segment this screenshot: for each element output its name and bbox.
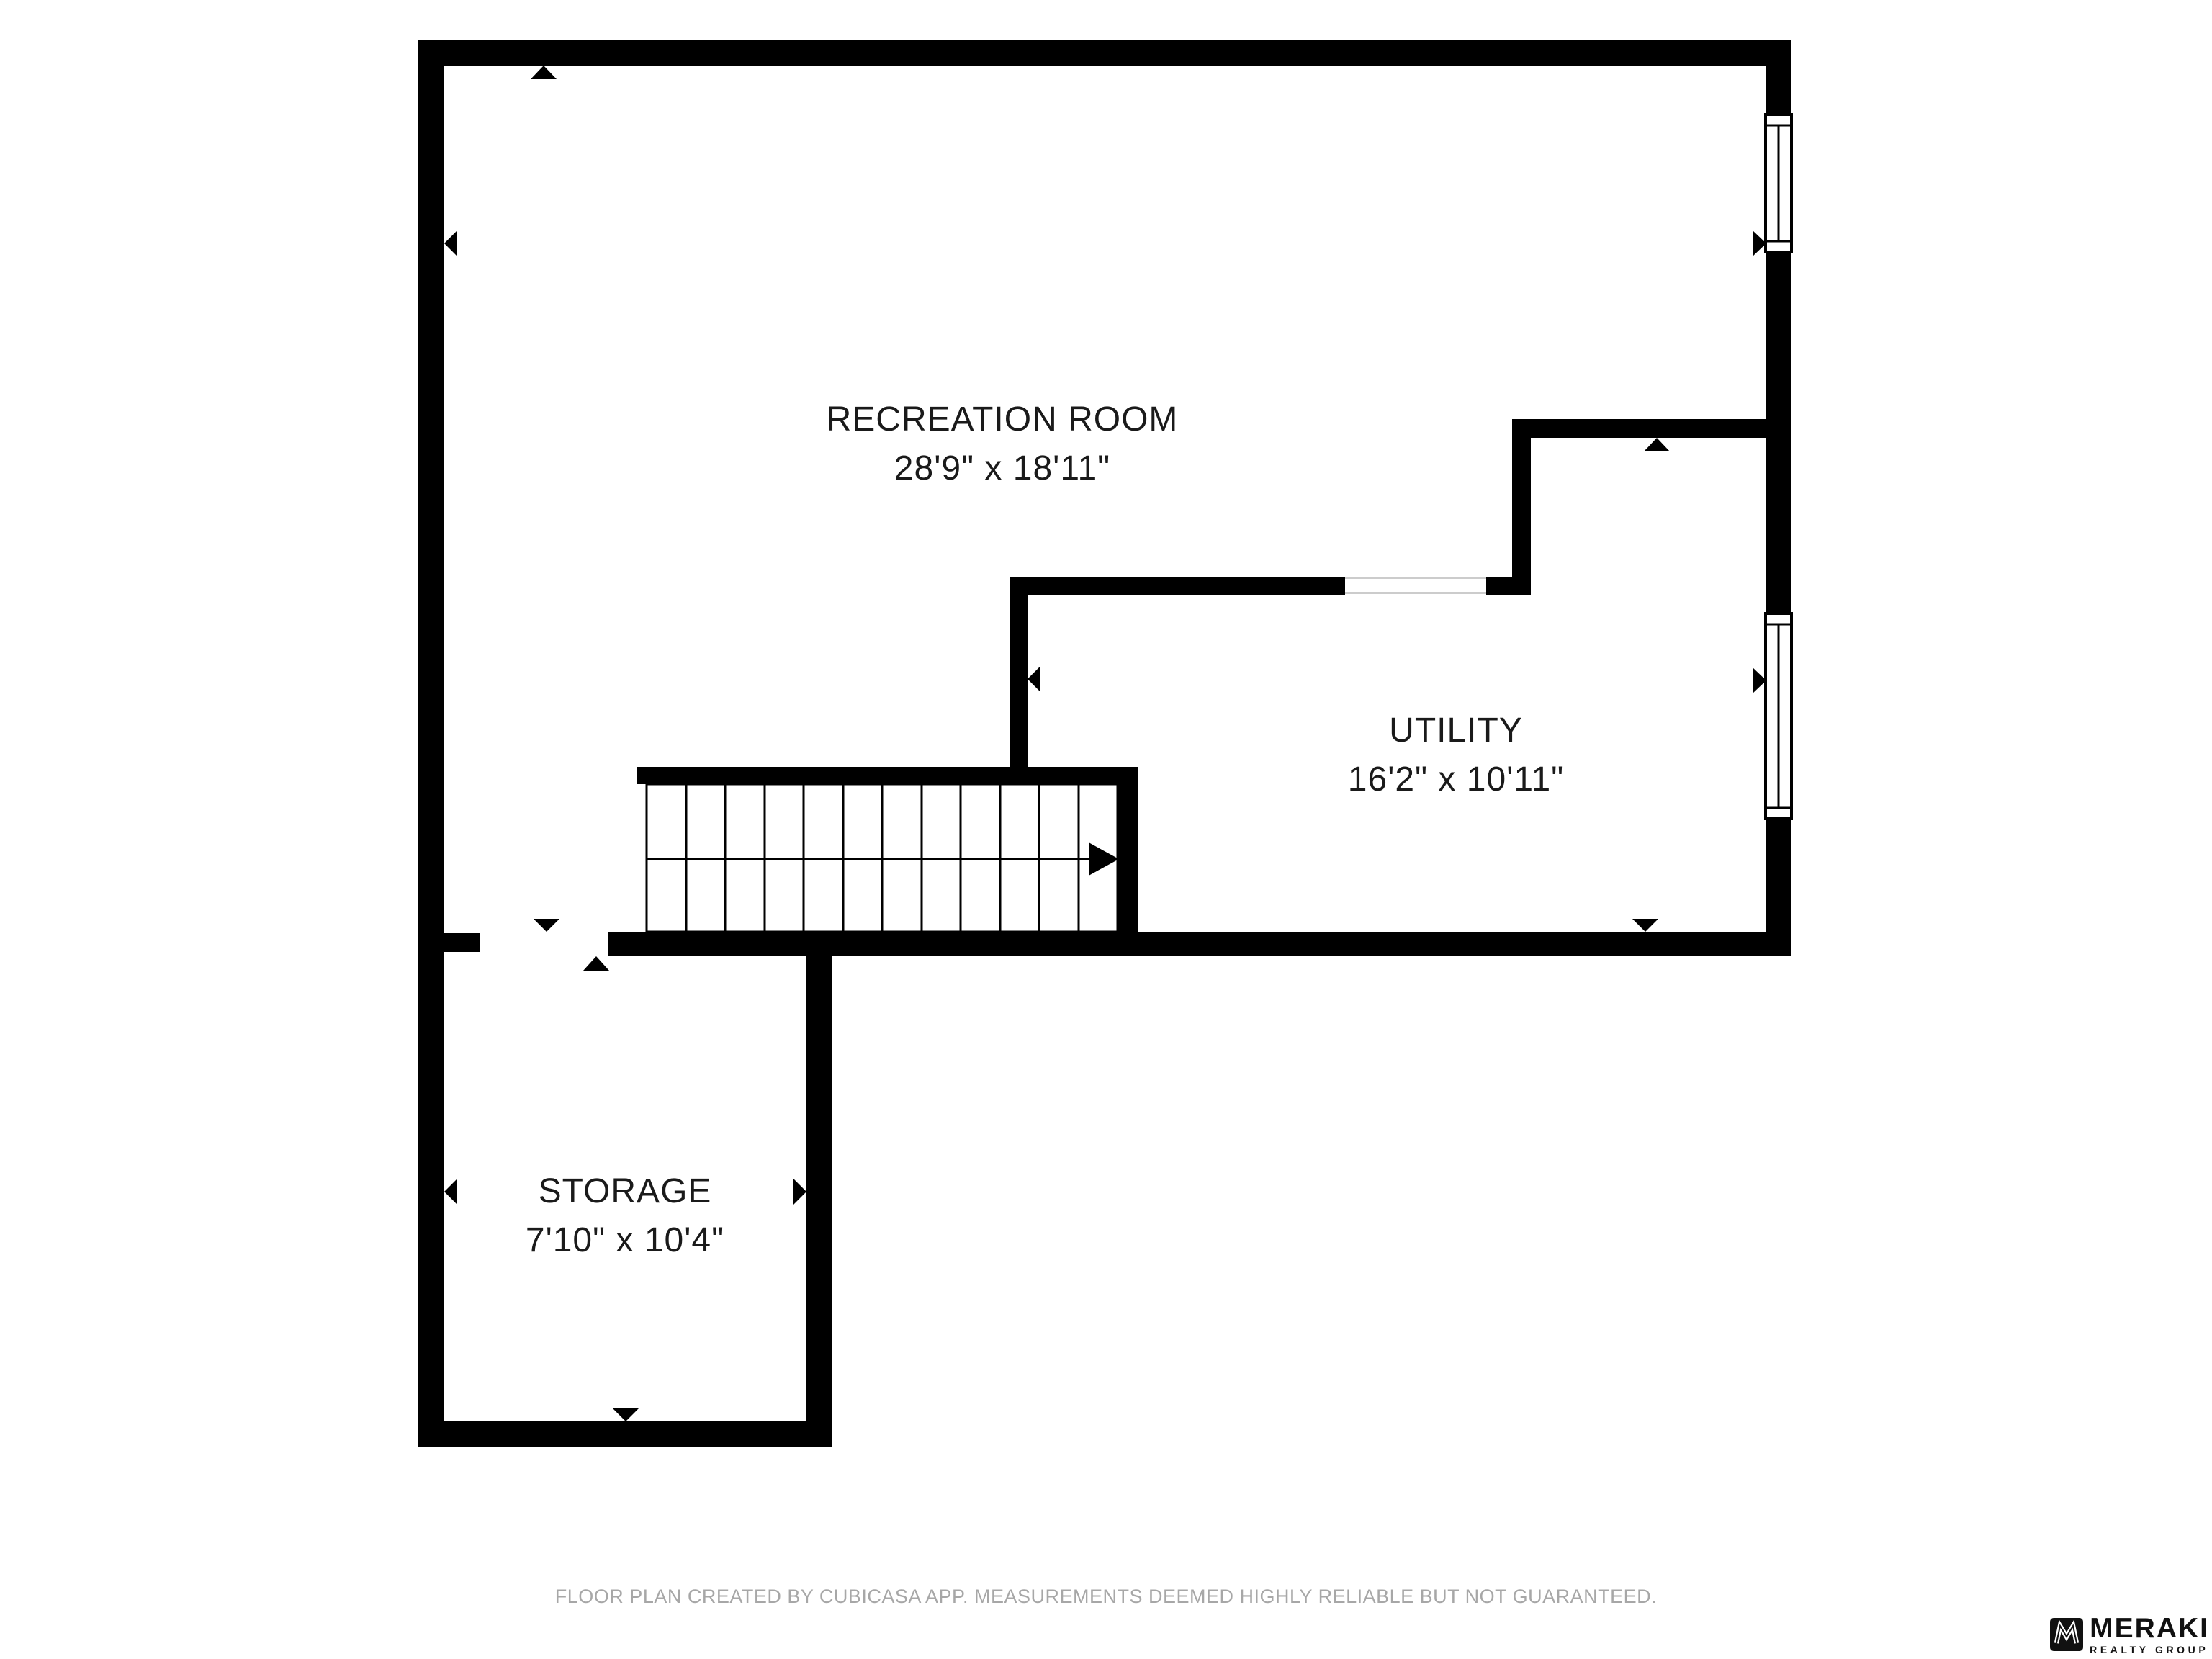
utility-room-label: UTILITY xyxy=(1389,711,1523,750)
wall-right-upper xyxy=(1766,66,1791,114)
recreation-room-label: RECREATION ROOM xyxy=(827,400,1179,439)
floor-plan-page: RECREATION ROOM 28'9" x 18'11" UTILITY 1… xyxy=(0,0,2212,1659)
storage-room-dimensions: 7'10" x 10'4" xyxy=(526,1221,724,1259)
marker-left-storage xyxy=(444,1179,457,1205)
wall-left xyxy=(418,40,444,1447)
wall-top xyxy=(418,40,1791,66)
brand-logo: MERAKI REALTY GROUP xyxy=(2050,1614,2209,1655)
marker-up-top-wall xyxy=(531,66,557,79)
wall-stairs-right xyxy=(1118,767,1138,932)
window-upper xyxy=(1766,114,1791,252)
disclaimer-text: FLOOR PLAN CREATED BY CUBICASA APP. MEAS… xyxy=(0,1586,2212,1608)
wall-storage-door-stub xyxy=(444,933,480,952)
room-labels: RECREATION ROOM 28'9" x 18'11" UTILITY 1… xyxy=(526,400,1564,1259)
wall-utility-south-left xyxy=(1010,577,1345,595)
storage-room-label: STORAGE xyxy=(539,1172,712,1210)
direction-markers xyxy=(444,66,1766,1421)
marker-right-storage xyxy=(793,1179,806,1205)
wall-stairs-top xyxy=(637,767,1137,784)
floor-plan-drawing: RECREATION ROOM 28'9" x 18'11" UTILITY 1… xyxy=(0,0,2212,1659)
opening-line-bottom xyxy=(1345,592,1486,594)
wall-right-middle xyxy=(1766,252,1791,613)
utility-opening xyxy=(1345,577,1486,594)
marker-down-storage-opening xyxy=(534,919,559,932)
marker-up-utility-north xyxy=(1644,438,1670,451)
marker-left-utility-west xyxy=(1028,666,1040,692)
recreation-room-dimensions: 28'9" x 18'11" xyxy=(894,449,1110,487)
wall-bottom-main xyxy=(608,932,1791,956)
brand-tagline: REALTY GROUP xyxy=(2090,1645,2209,1655)
staircase xyxy=(647,784,1118,932)
window-lower xyxy=(1766,613,1791,819)
marker-up-below-bottom-wall xyxy=(583,956,609,971)
wall-utility-northwest xyxy=(1512,419,1531,595)
brand-name: MERAKI xyxy=(2090,1614,2209,1642)
marker-left-left-wall xyxy=(444,230,457,256)
brand-text: MERAKI REALTY GROUP xyxy=(2090,1614,2209,1655)
utility-room-dimensions: 16'2" x 10'11" xyxy=(1348,760,1564,799)
wall-utility-north xyxy=(1512,419,1766,438)
monogram-m-icon xyxy=(2050,1618,2083,1651)
opening-line-top xyxy=(1345,577,1486,579)
wall-storage-bottom xyxy=(418,1421,832,1447)
wall-utility-west xyxy=(1010,577,1028,784)
marker-down-storage-bottom xyxy=(613,1408,639,1421)
meraki-monogram-icon xyxy=(2050,1618,2083,1651)
marker-down-utility-bottom xyxy=(1632,919,1658,932)
stairs-direction-arrowhead xyxy=(1089,842,1119,876)
wall-storage-right xyxy=(806,932,832,1447)
